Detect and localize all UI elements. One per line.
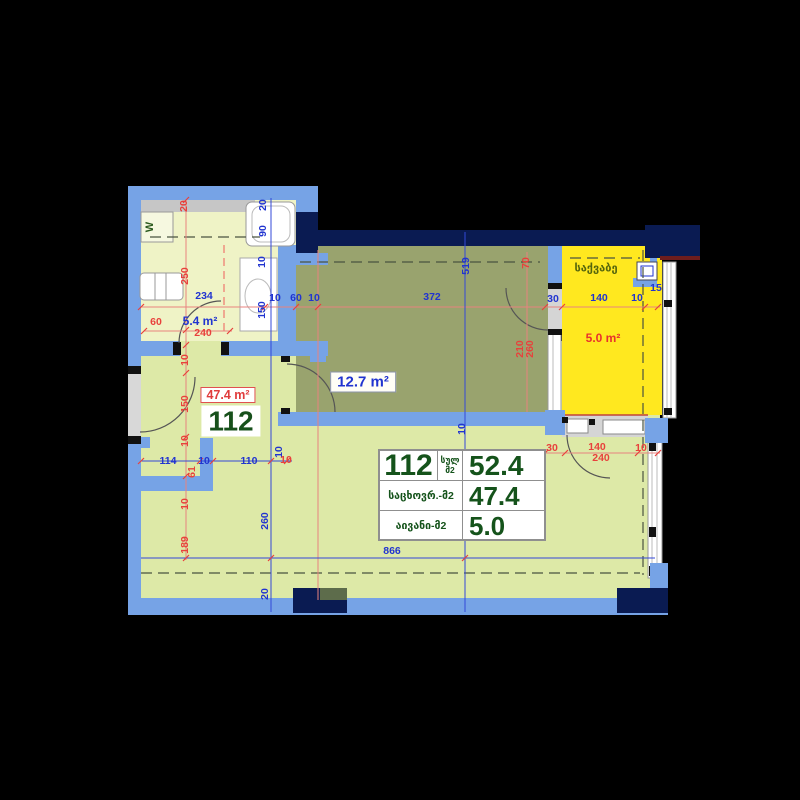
column-top-right (645, 225, 700, 258)
wall-bathroom-corner (296, 186, 318, 212)
wall-bedroom-west-flange (278, 253, 328, 265)
table-living-value: 47.4 (463, 481, 544, 510)
boiler-fixture (637, 262, 657, 280)
niche-south-wall (128, 476, 213, 491)
floorplan-canvas: 5.4 m² 12.7 m² 47.4 m² 112 საქვაბე 5.0 m… (0, 0, 800, 800)
table-balcony-label: აივანი-მ2 (380, 511, 463, 540)
table-living-label: საცხოვრ.-მ2 (380, 481, 463, 510)
table-unit-number: 112 (380, 451, 438, 480)
wall-top-dark (316, 230, 660, 246)
facade-line-top-right (660, 256, 700, 260)
balcony-window-2 (603, 420, 645, 434)
entrance-opening[interactable] (128, 373, 141, 437)
table-balcony-value: 5.0 (463, 511, 544, 540)
column-bottom-right (617, 588, 668, 613)
balcony-window-1 (567, 419, 588, 433)
bathroom-counter (141, 200, 255, 212)
area-table: 112 სულ მ2 52.4 საცხოვრ.-მ2 47.4 აივანი-… (378, 449, 546, 541)
wall-bottom (128, 598, 668, 615)
window-right-upper (663, 262, 676, 418)
wall-bathroom-top (128, 186, 312, 200)
wall-strip-east-block (645, 418, 668, 443)
floorplan-drawing (0, 0, 800, 800)
table-row-balcony: აივანი-მ2 5.0 (380, 511, 544, 540)
column-bottom-left-cap (320, 588, 347, 600)
bedroom-floor (296, 246, 548, 412)
window-bedroom-east (548, 330, 561, 412)
wall-bathroom-bottom-left (128, 341, 180, 356)
table-row-living: საცხოვრ.-მ2 47.4 (380, 481, 544, 511)
vanity-cabinet (140, 273, 183, 300)
column-bathroom-east (296, 212, 318, 253)
table-row-total: 112 სულ მ2 52.4 (380, 451, 544, 481)
table-total-value: 52.4 (463, 451, 544, 480)
window-right-lower (648, 438, 662, 578)
table-total-label-2: მ2 (445, 466, 455, 475)
table-total-label: სულ მ2 (438, 451, 463, 480)
